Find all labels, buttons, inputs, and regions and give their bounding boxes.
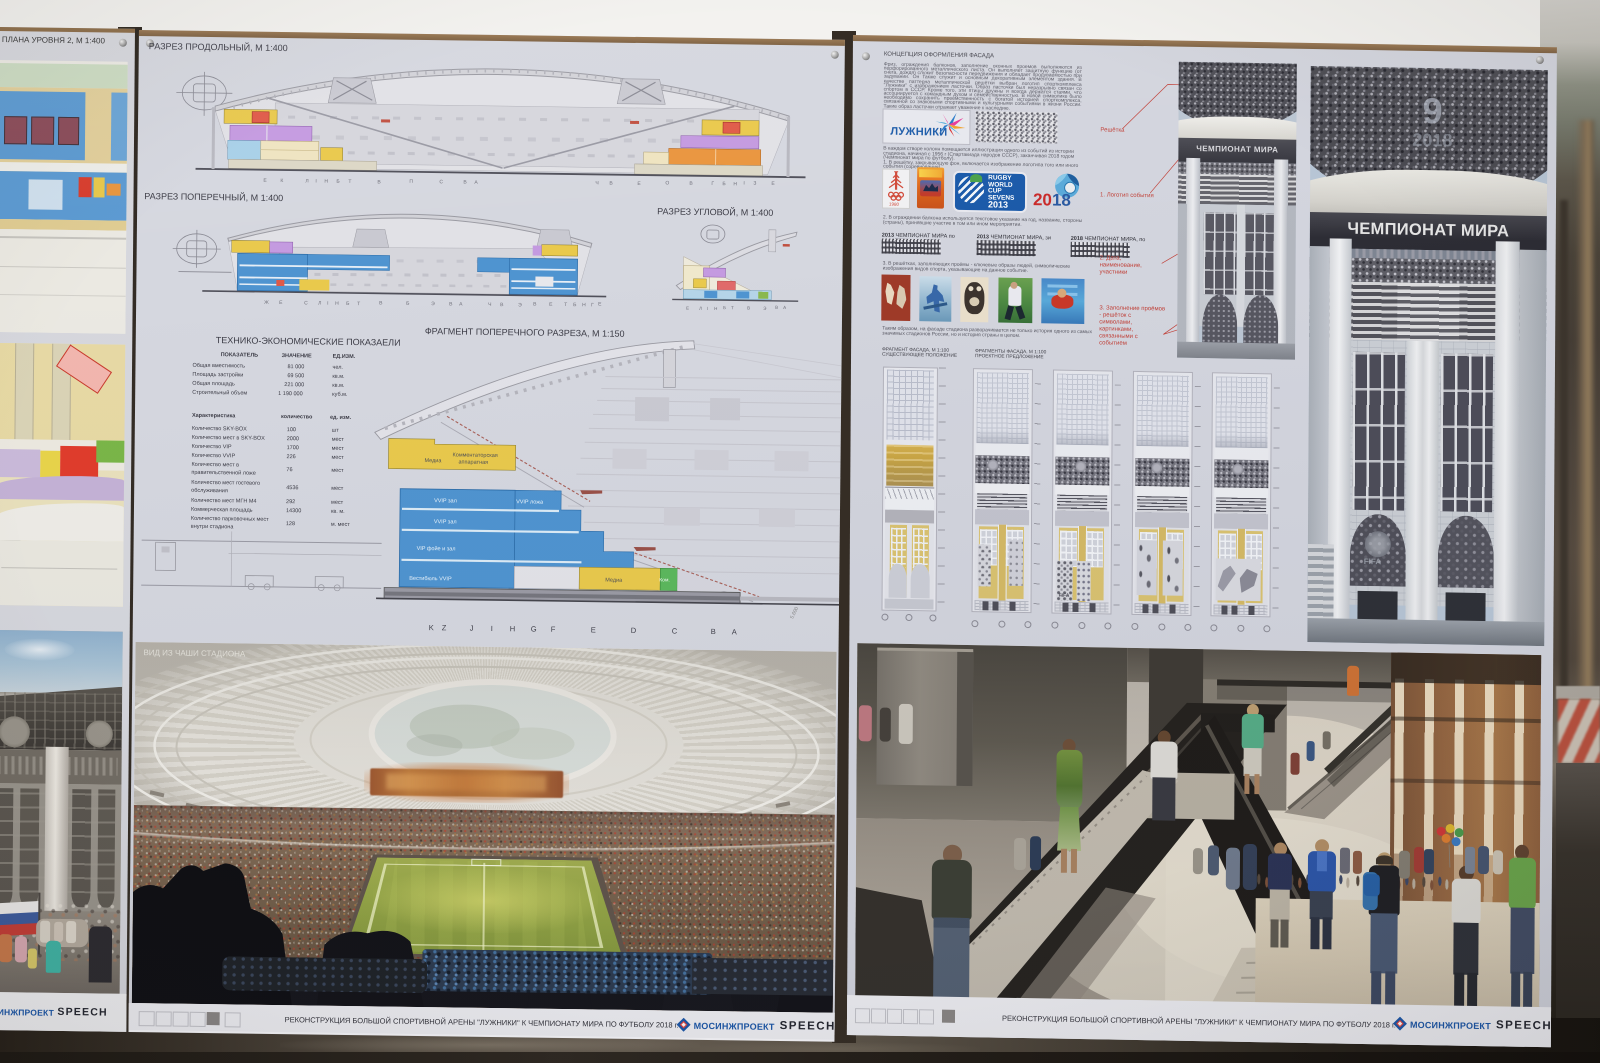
svg-text:Л: Л	[318, 301, 321, 307]
svg-text:З: З	[753, 181, 756, 187]
svg-text:С: С	[304, 300, 308, 306]
svg-text:Медиа: Медиа	[605, 578, 623, 584]
svg-text:Е: Е	[637, 181, 641, 187]
svg-text:Е: Е	[686, 306, 689, 311]
svg-text:Ком.: Ком.	[659, 577, 670, 583]
svg-text:Е: Е	[598, 301, 602, 307]
svg-text:VVIP ложа: VVIP ложа	[516, 499, 544, 505]
svg-text:В: В	[379, 300, 383, 306]
svg-text:К: К	[280, 178, 283, 184]
svg-text:Вестибюль VVIP: Вестибюль VVIP	[409, 576, 452, 583]
svg-text:Т: Т	[731, 305, 734, 310]
svg-text:Л: Л	[305, 178, 308, 184]
svg-text:Б: Б	[722, 181, 726, 187]
svg-text:J: J	[470, 624, 474, 633]
svg-text:A: A	[732, 627, 737, 636]
svg-text:B: B	[711, 627, 716, 636]
svg-text:А: А	[783, 305, 786, 310]
svg-text:VVIP зал: VVIP зал	[434, 519, 457, 525]
svg-text:В: В	[609, 181, 613, 187]
svg-text:Э: Э	[763, 306, 767, 311]
svg-text:А: А	[459, 301, 463, 307]
svg-text:Н: Н	[733, 181, 737, 187]
svg-text:Т: Т	[348, 179, 351, 185]
svg-text:Н: Н	[335, 301, 339, 307]
svg-text:20: 20	[1033, 190, 1052, 209]
svg-text:С: С	[439, 179, 443, 185]
svg-text:В: В	[377, 179, 381, 185]
svg-text:5.600: 5.600	[789, 606, 800, 620]
svg-text:E: E	[591, 625, 596, 634]
svg-text:В: В	[533, 302, 537, 308]
svg-text:Л: Л	[699, 306, 702, 311]
svg-text:Б: Б	[346, 301, 350, 307]
svg-text:I: I	[491, 624, 493, 633]
svg-text:І: І	[743, 180, 744, 186]
svg-text:В: В	[449, 301, 453, 307]
svg-text:Е: Е	[263, 178, 267, 184]
svg-text:Медиа: Медиа	[424, 458, 442, 464]
svg-text:Г: Г	[711, 181, 714, 187]
svg-text:Н: Н	[714, 306, 717, 311]
svg-text:І: І	[707, 306, 708, 311]
svg-text:H: H	[510, 624, 516, 633]
svg-text:Т: Т	[564, 302, 567, 308]
svg-text:Н: Н	[324, 179, 328, 185]
svg-text:Е: Е	[279, 300, 283, 306]
svg-text:В: В	[689, 181, 693, 187]
svg-text:Е: Е	[771, 181, 775, 187]
svg-text:VIP фойе и зал: VIP фойе и зал	[417, 545, 456, 553]
svg-text:1980: 1980	[889, 202, 900, 207]
svg-text:K: K	[429, 623, 434, 632]
svg-text:Ж: Ж	[264, 300, 269, 306]
svg-text:Ч: Ч	[595, 180, 598, 186]
svg-text:В: В	[747, 306, 750, 311]
svg-text:Б: Б	[336, 179, 340, 185]
svg-text:Г: Г	[591, 302, 594, 308]
svg-text:П: П	[409, 179, 413, 185]
svg-text:В: В	[775, 305, 778, 310]
svg-text:Н: Н	[582, 302, 586, 308]
svg-text:Б: Б	[406, 301, 410, 307]
svg-text:В: В	[500, 302, 504, 308]
svg-text:аппаратная: аппаратная	[458, 460, 488, 466]
svg-text:Б: Б	[573, 302, 577, 308]
svg-text:А: А	[474, 180, 478, 186]
svg-text:І: І	[315, 178, 316, 184]
svg-text:18: 18	[1052, 190, 1071, 209]
svg-text:Е: Е	[549, 302, 553, 308]
svg-text:VVIP зал: VVIP зал	[434, 498, 457, 504]
svg-text:G: G	[531, 625, 537, 634]
svg-text:F: F	[551, 625, 556, 634]
svg-text:Т: Т	[357, 301, 360, 307]
svg-text:О: О	[665, 180, 669, 186]
svg-text:В: В	[463, 180, 467, 186]
svg-text:Z: Z	[442, 623, 447, 632]
svg-text:І: І	[327, 301, 328, 307]
svg-text:C: C	[672, 626, 678, 635]
svg-text:Э: Э	[431, 301, 435, 307]
svg-text:Комментаторская: Комментаторская	[453, 452, 498, 459]
svg-text:Э: Э	[518, 302, 522, 308]
svg-text:D: D	[631, 626, 637, 635]
svg-text:Ч: Ч	[488, 302, 491, 308]
svg-text:Б: Б	[723, 305, 726, 310]
